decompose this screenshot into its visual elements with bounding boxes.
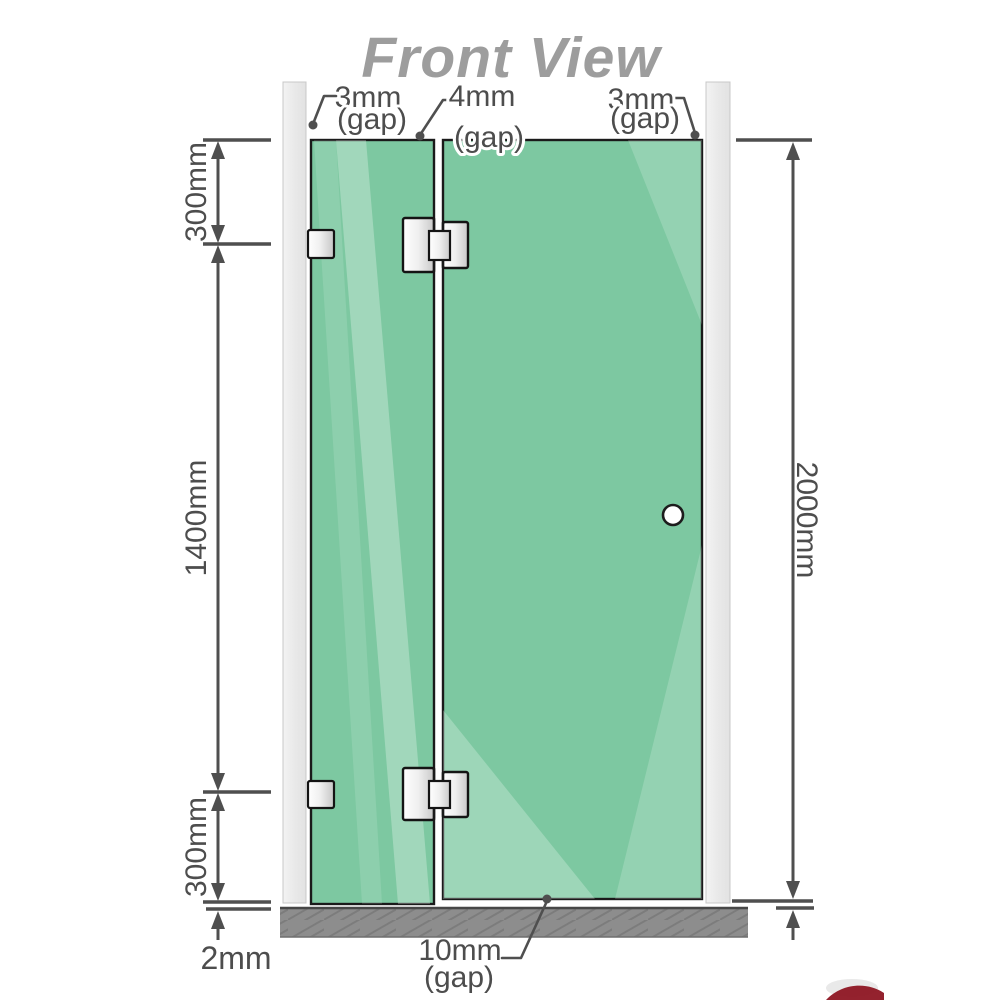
leader-dot — [416, 132, 425, 141]
front-view-diagram: Front View — [0, 0, 1000, 1000]
leader-dot — [309, 121, 318, 130]
dim-label-left-upper: 300mm — [180, 142, 213, 242]
wall-bracket-bottom — [308, 781, 334, 808]
arrowhead-up — [211, 793, 225, 811]
floor-base — [280, 908, 748, 937]
gap-qualifier: (gap) — [454, 121, 524, 154]
door-glass-panel — [443, 140, 702, 899]
gap-qualifier: (gap) — [610, 102, 680, 135]
arrowhead-down — [786, 881, 800, 899]
right-wall-channel — [706, 82, 730, 903]
arrowhead-up — [786, 142, 800, 160]
leader-dot — [691, 131, 700, 140]
left-dimension-chain: 300mm 1400mm 300mm 2mm — [180, 140, 272, 976]
dim-label-left-lower: 300mm — [180, 797, 213, 897]
leader-line — [313, 96, 336, 124]
hinge-knuckle — [429, 231, 450, 260]
dim-label-left-middle: 1400mm — [180, 460, 213, 577]
front-view-drawing: Front View — [0, 0, 1000, 1000]
hinge-bottom — [403, 768, 468, 820]
arrowhead-down — [211, 773, 225, 791]
door-handle-knob — [663, 505, 683, 525]
logo-remnant — [826, 979, 884, 1000]
gap-callout-top-right: 3mm (gap) — [608, 83, 700, 140]
dim-label-floor-gap: 2mm — [200, 940, 271, 976]
right-dimension: 2000mm — [732, 140, 823, 940]
left-wall-channel — [283, 82, 306, 903]
gap-value: 4mm — [449, 80, 516, 113]
wall-bracket-top — [308, 230, 334, 258]
leader-dot — [543, 895, 552, 904]
gap-qualifier: (gap) — [337, 103, 407, 136]
arrowhead-down — [211, 225, 225, 243]
arrowhead-up — [211, 911, 225, 929]
arrowhead-up — [211, 141, 225, 159]
hinge-knuckle — [429, 781, 450, 808]
dim-label-overall-height: 2000mm — [790, 462, 823, 579]
arrowhead-up — [211, 245, 225, 263]
arrowhead-up — [786, 910, 800, 928]
arrowhead-down — [211, 883, 225, 901]
floor-slab — [280, 908, 748, 937]
gap-callout-top-left: 3mm (gap) — [309, 81, 408, 136]
gap-qualifier: (gap) — [424, 961, 494, 994]
hinge-top — [403, 218, 468, 272]
